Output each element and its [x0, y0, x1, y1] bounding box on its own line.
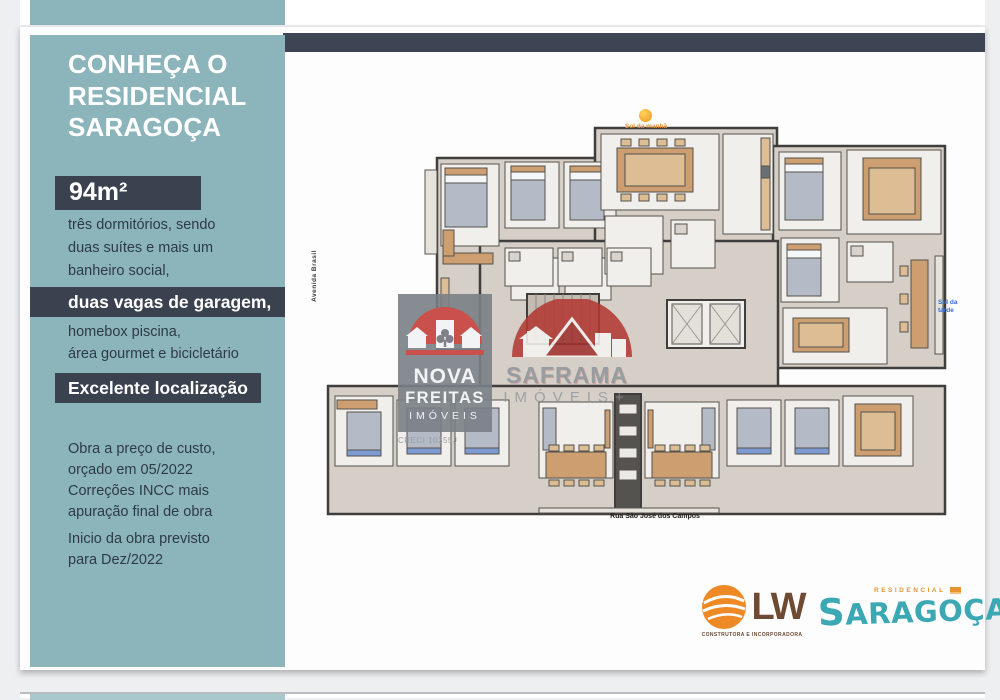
note-line: para Dez/2022 [68, 550, 285, 571]
area-badge: 94m² [55, 176, 201, 210]
feature-line: banheiro social, [68, 260, 285, 283]
title-line: CONHEÇA O [68, 49, 285, 81]
previous-page-sliver [20, 0, 985, 25]
sun-icon [639, 109, 652, 122]
nova-freitas-badge: NOVA FREITAS IMÓVEIS [398, 294, 492, 432]
page-title: CONHEÇA O RESIDENCIAL SARAGOÇA [68, 49, 285, 144]
note-line: Inicio da obra previsto [68, 529, 285, 550]
note-line: Correções INCC mais [68, 481, 285, 502]
feature-line: duas suítes e mais um [68, 237, 285, 260]
saframa-watermark: SAFRAMA IMÓVEIS+ [493, 299, 641, 408]
start-date-note: Inicio da obra previsto para Dez/2022 [68, 529, 285, 571]
note-line: apuração final de obra [68, 502, 285, 523]
top-accent-bar [283, 33, 985, 52]
next-page-sliver [20, 692, 985, 698]
sidebar: CONHEÇA O RESIDENCIAL SARAGOÇA 94m² três… [30, 35, 285, 667]
lw-subtitle: CONSTRUTORA E INCORPORADORA [696, 632, 808, 638]
saframa-logo-icon [507, 299, 637, 357]
construction-note: Obra a preço de custo, orçado em 05/2022… [68, 439, 285, 523]
lw-name: LW [752, 585, 805, 629]
saragoca-logo: RESIDENCIAL SARAGOÇA [818, 587, 963, 630]
flyer-page: CONHEÇA O RESIDENCIAL SARAGOÇA 94m² três… [20, 27, 985, 670]
street-label-bottom: Rua São José dos Campos [555, 513, 755, 520]
next-page-teal [30, 694, 285, 700]
feature-list-1: três dormitórios, sendo duas suítes e ma… [68, 214, 285, 283]
feature-line: três dormitórios, sendo [68, 214, 285, 237]
title-line: SARAGOÇA [68, 112, 285, 144]
lw-logo: LW CONSTRUTORA E INCORPORADORA [696, 583, 808, 638]
nova-freitas-watermark: NOVA FREITAS IMÓVEIS CRECI 10355J [398, 294, 492, 445]
saframa-subtitle-text: IMÓVEIS [503, 389, 615, 406]
feature-line: área gourmet e bicicletário [68, 343, 285, 365]
highlight-location: Excelente localização [55, 373, 261, 403]
saragoca-name: SARAGOÇA [817, 591, 963, 632]
saframa-name: SAFRAMA [493, 362, 641, 388]
previous-page-teal [30, 0, 285, 25]
nova-line2: FREITAS [398, 389, 492, 408]
creci-number: CRECI 10355J [398, 436, 492, 445]
feature-list-2: homebox piscina, área gourmet e biciclet… [68, 321, 285, 365]
afternoon-sun-label: Sol da tarde [938, 299, 964, 315]
nova-line1: NOVA [398, 365, 492, 389]
morning-sun-label: Sol da manhã [599, 123, 693, 130]
highlight-garage: duas vagas de garagem, [30, 287, 285, 317]
saframa-subtitle: IMÓVEIS+ [493, 388, 641, 408]
note-line: orçado em 05/2022 [68, 460, 285, 481]
saframa-plus: + [615, 389, 631, 406]
nova-line3: IMÓVEIS [398, 408, 492, 424]
viewport: CONHEÇA O RESIDENCIAL SARAGOÇA 94m² três… [0, 0, 1000, 698]
note-line: Obra a preço de custo, [68, 439, 285, 460]
street-label-left: Avenida Brasil [311, 250, 318, 302]
nova-freitas-logo-icon [398, 300, 492, 360]
lw-swirl-icon [700, 583, 748, 631]
feature-line: homebox piscina, [68, 321, 285, 343]
title-line: RESIDENCIAL [68, 81, 285, 113]
